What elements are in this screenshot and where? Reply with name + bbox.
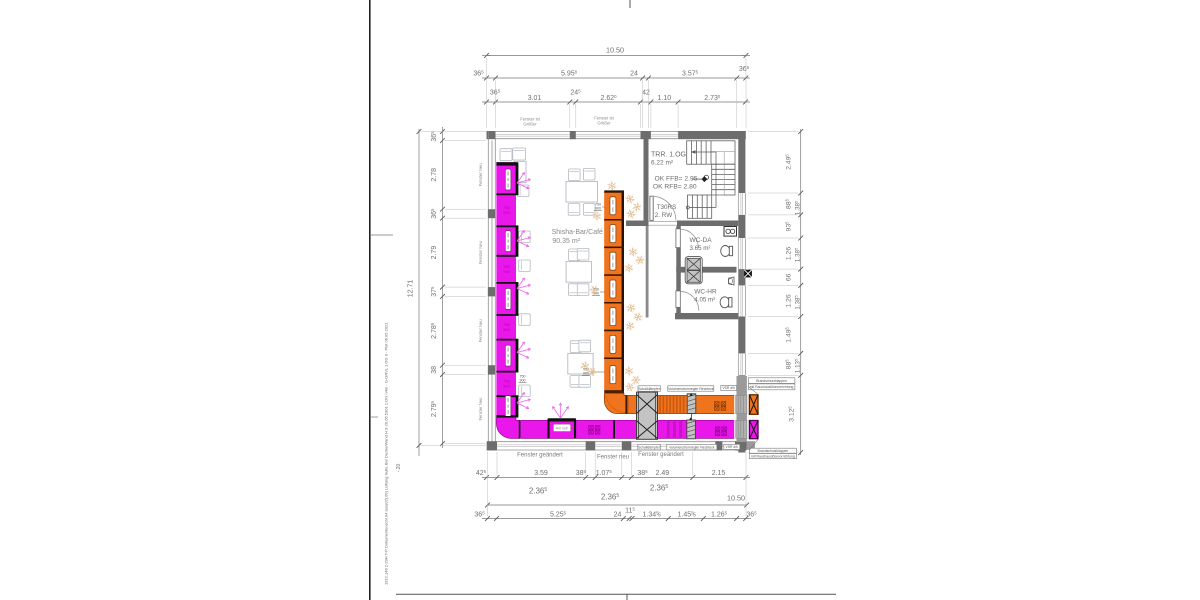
svg-text:1.385: 1.385 bbox=[794, 201, 801, 215]
svg-text:VSR d/h: VSR d/h bbox=[722, 386, 735, 390]
svg-text:Fenster neu: Fenster neu bbox=[597, 455, 629, 461]
svg-text:OK RFB= 2.80: OK RFB= 2.80 bbox=[653, 183, 697, 190]
svg-text:1912.148 2-29H T-P Dokumentens: 1912.148 2-29H T-P Dokumentenschl.04 aus… bbox=[384, 322, 389, 585]
svg-text:900: 900 bbox=[503, 384, 510, 389]
svg-text:mit Rauchauslösevorrichtung: mit Rauchauslösevorrichtung bbox=[751, 454, 795, 458]
svg-text:Schalldämpfer: Schalldämpfer bbox=[638, 387, 661, 391]
svg-text:6.22 m²: 6.22 m² bbox=[651, 160, 674, 167]
svg-text:1.385: 1.385 bbox=[794, 248, 801, 262]
svg-text:Fenster geändert: Fenster geändert bbox=[517, 452, 563, 458]
svg-text:66: 66 bbox=[786, 273, 793, 281]
svg-text:900: 900 bbox=[503, 327, 510, 332]
svg-text:OK FFB= 2.95: OK FFB= 2.95 bbox=[655, 176, 698, 183]
svg-text:750: 750 bbox=[503, 205, 510, 210]
svg-text:1.135: 1.135 bbox=[794, 359, 801, 373]
svg-text:Größer: Größer bbox=[597, 121, 611, 126]
svg-text:Brandschutzklappen: Brandschutzklappen bbox=[758, 449, 789, 453]
svg-text:-.20: -.20 bbox=[396, 463, 402, 472]
svg-text:24: 24 bbox=[614, 512, 622, 519]
svg-text:900: 900 bbox=[583, 372, 589, 376]
svg-text:10.50: 10.50 bbox=[727, 494, 745, 503]
svg-text:Volumenstromregler Rechteck: Volumenstromregler Rechteck bbox=[668, 387, 714, 391]
svg-text:3.65 m²: 3.65 m² bbox=[690, 245, 711, 252]
svg-text:900: 900 bbox=[595, 207, 601, 211]
svg-text:Volumenstromregler Rechteck: Volumenstromregler Rechteck bbox=[669, 445, 715, 449]
svg-text:1.26: 1.26 bbox=[786, 247, 793, 260]
svg-text:VSR d/h: VSR d/h bbox=[725, 445, 738, 449]
svg-text:2.79: 2.79 bbox=[431, 246, 438, 260]
svg-text:Fenster Neu: Fenster Neu bbox=[478, 240, 483, 264]
svg-text:750: 750 bbox=[503, 378, 510, 383]
svg-text:900: 900 bbox=[503, 210, 510, 215]
svg-text:1.26: 1.26 bbox=[786, 294, 793, 307]
svg-text:mit Rauchauslösevorrichtung: mit Rauchauslösevorrichtung bbox=[750, 385, 794, 389]
svg-text:5: 5 bbox=[693, 513, 696, 519]
svg-text:1.10: 1.10 bbox=[657, 95, 671, 102]
svg-text:WC-DA: WC-DA bbox=[690, 237, 713, 244]
svg-text:10.50: 10.50 bbox=[606, 46, 624, 55]
svg-text:3.59: 3.59 bbox=[534, 470, 548, 477]
svg-text:Fenster Neu: Fenster Neu bbox=[478, 163, 483, 187]
svg-text:750: 750 bbox=[503, 322, 510, 327]
svg-text:90.35 m²: 90.35 m² bbox=[552, 238, 580, 245]
svg-text:Fenster Neu: Fenster Neu bbox=[478, 319, 483, 343]
svg-text:900: 900 bbox=[520, 379, 526, 383]
svg-text:WC-HR: WC-HR bbox=[694, 288, 717, 295]
svg-text:2.49: 2.49 bbox=[655, 470, 669, 477]
svg-text:Shisha-Bar/Café: Shisha-Bar/Café bbox=[552, 229, 603, 236]
svg-text:750: 750 bbox=[503, 264, 510, 269]
svg-text:400 m³/h: 400 m³/h bbox=[556, 426, 569, 430]
svg-text:T30RS: T30RS bbox=[657, 204, 677, 211]
svg-text:Brandschutzklappen: Brandschutzklappen bbox=[756, 379, 787, 383]
svg-text:Schalldämpfer: Schalldämpfer bbox=[638, 445, 661, 449]
svg-text:900: 900 bbox=[503, 269, 510, 274]
svg-text:Fenster geändert: Fenster geändert bbox=[638, 452, 684, 458]
svg-text:1.385: 1.385 bbox=[794, 295, 801, 309]
svg-text:12.71: 12.71 bbox=[408, 280, 415, 298]
svg-text:4.05 m²: 4.05 m² bbox=[694, 296, 715, 303]
svg-text:2.78: 2.78 bbox=[431, 168, 438, 182]
svg-text:Fenster Neu: Fenster Neu bbox=[478, 397, 483, 421]
svg-text:38: 38 bbox=[431, 366, 438, 374]
svg-text:42: 42 bbox=[642, 90, 650, 97]
svg-text:Größer: Größer bbox=[523, 121, 537, 126]
svg-text:5: 5 bbox=[658, 513, 661, 519]
svg-text:24: 24 bbox=[630, 71, 638, 78]
svg-text:2.15: 2.15 bbox=[712, 470, 726, 477]
svg-text:3.01: 3.01 bbox=[528, 95, 542, 102]
svg-text:2. RW: 2. RW bbox=[655, 212, 672, 219]
svg-text:TRR. 1.OG: TRR. 1.OG bbox=[651, 152, 686, 159]
